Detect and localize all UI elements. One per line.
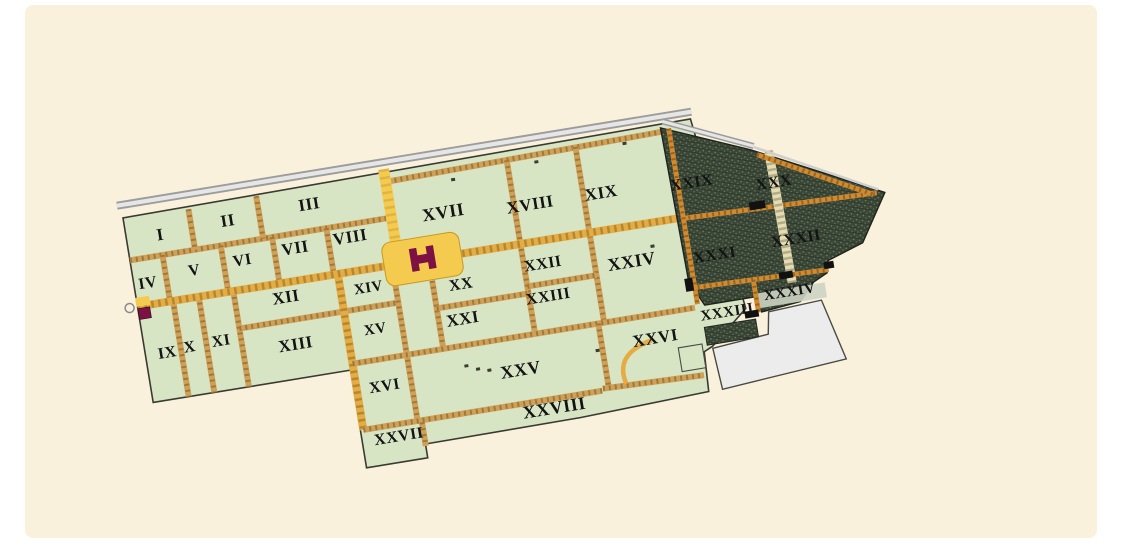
west-gate-marker — [138, 307, 152, 320]
region-label-III: III — [297, 193, 321, 215]
building-mark — [622, 142, 626, 146]
building-mark — [487, 368, 491, 372]
region-label-XI: XI — [210, 331, 231, 351]
screenshot-root: IIIIIIIVVVIVIIVIIIIXXXIXIIXIIIXIVXVXVIXV… — [0, 0, 1128, 550]
west-gate-circle — [124, 303, 134, 313]
small-block-outline — [678, 344, 706, 372]
building-mark — [451, 178, 455, 182]
building-mark — [595, 349, 599, 353]
region-label-II: II — [219, 210, 236, 231]
region-label-VI: VI — [232, 251, 253, 271]
building-mark — [464, 364, 468, 368]
city-map-figure: IIIIIIIVVVIVIIVIIIIXXXIXIIXIIIXIVXVXVIXV… — [0, 0, 1128, 550]
region-label-IX: IX — [157, 343, 178, 363]
region-label-IV: IV — [137, 273, 158, 293]
building-mark — [534, 160, 538, 164]
building-mark — [476, 367, 480, 371]
